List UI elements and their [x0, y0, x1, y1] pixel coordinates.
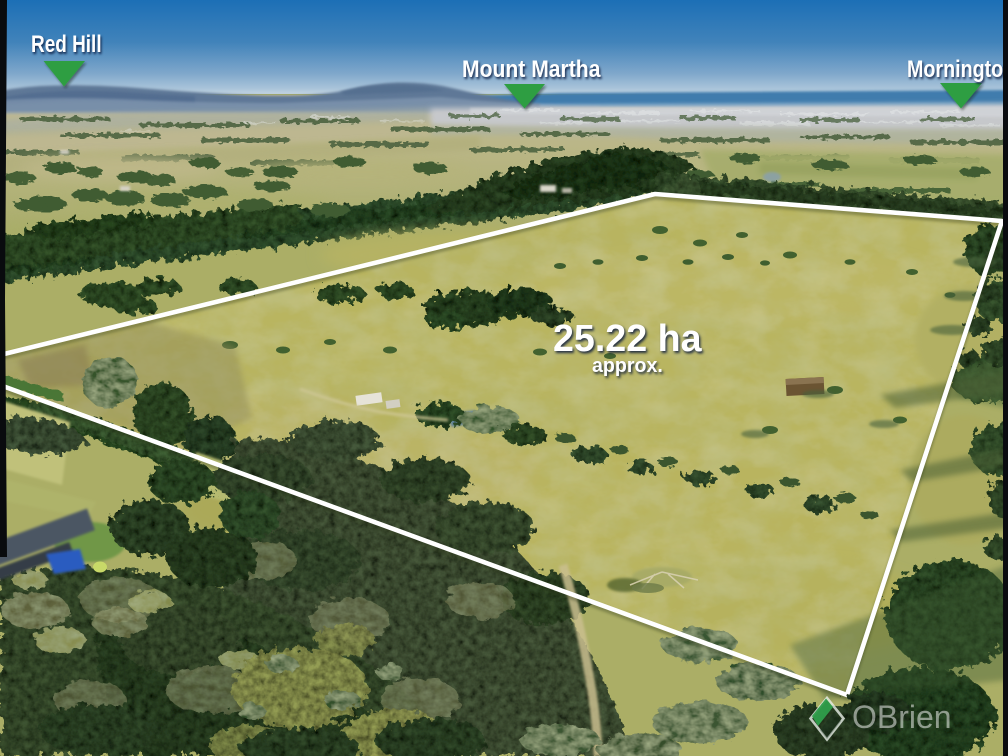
svg-text:OBrien: OBrien: [852, 699, 952, 735]
